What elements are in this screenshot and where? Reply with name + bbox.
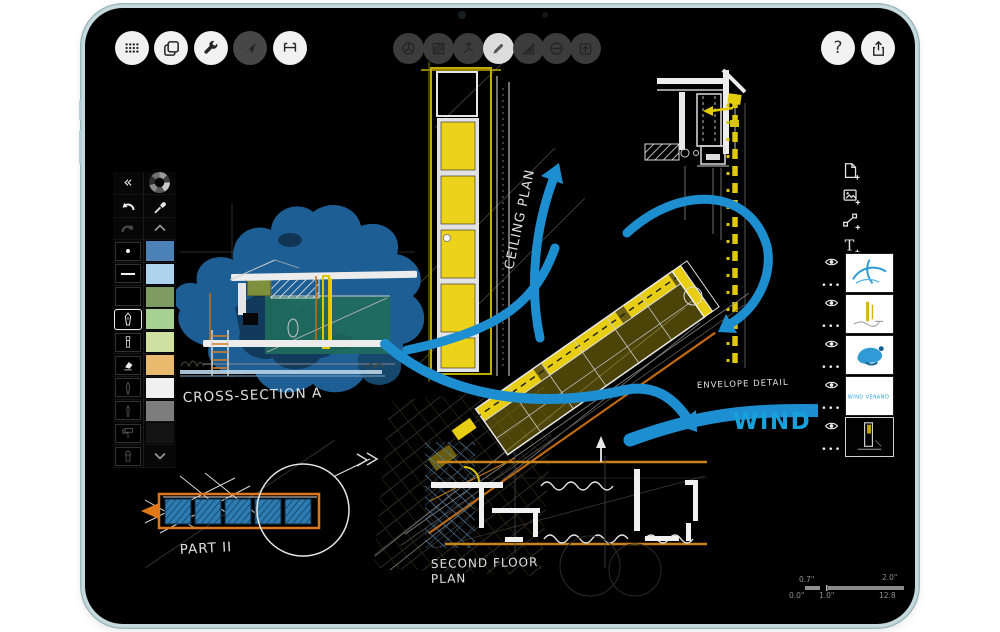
circle-minus-icon	[548, 40, 565, 57]
pencil-tool-icon	[119, 380, 137, 396]
layer-thumbnail-arrows[interactable]	[845, 253, 894, 293]
eyedropper-icon	[151, 197, 169, 215]
layer-thumbnail-yellow[interactable]	[845, 294, 894, 334]
part-two-drawing	[141, 453, 377, 556]
layer-options-icon[interactable]: •••	[821, 366, 841, 371]
redo-button[interactable]	[113, 218, 144, 241]
tool-slot-pencil[interactable]	[113, 377, 144, 400]
eye-icon[interactable]	[824, 421, 839, 431]
color-swatch-olive[interactable]	[144, 286, 175, 309]
svg-text:1.0": 1.0"	[819, 591, 834, 600]
help-button[interactable]: ?	[821, 31, 855, 65]
svg-text:0.0": 0.0"	[789, 591, 804, 600]
color-swatch-yellow-green[interactable]	[144, 331, 175, 354]
tool-slot-fineliner[interactable]	[113, 400, 144, 423]
tool-slot-pen-selected[interactable]	[113, 309, 144, 332]
power-button[interactable]	[79, 100, 82, 120]
sphere-tool-button[interactable]	[393, 33, 424, 64]
ipad-device: CROSS-SECTION A CEILING PLAN	[85, 8, 915, 624]
wrench-icon	[202, 39, 220, 57]
color-swatch-orange[interactable]	[144, 354, 175, 377]
tool-slot-stroke-line[interactable]	[113, 263, 144, 286]
add-nodes-icon	[841, 211, 861, 231]
slice-tool-button[interactable]	[541, 33, 572, 64]
swatch-scroll-up-button[interactable]	[144, 218, 175, 241]
eye-icon[interactable]	[824, 339, 839, 349]
eraser-tool-icon	[119, 357, 137, 373]
set-square-button[interactable]	[513, 33, 544, 64]
tool-slot-empty[interactable]	[113, 286, 144, 309]
layer-row-blue-massing: •••	[818, 334, 896, 375]
collapse-panel-button[interactable]: «	[113, 172, 144, 195]
color-wheel-button[interactable]	[144, 172, 175, 195]
add-image-icon	[841, 186, 861, 206]
undo-button[interactable]	[113, 195, 144, 218]
layer-row-wind-verano: ••• WIND VERANO	[818, 375, 896, 416]
layer-options-icon[interactable]: •••	[821, 284, 841, 289]
add-image-button[interactable]	[831, 183, 871, 208]
undo-icon	[120, 199, 136, 213]
add-page-icon	[841, 161, 861, 181]
share-button[interactable]	[861, 31, 895, 65]
stroke-dot-icon	[126, 249, 130, 253]
tool-slot-marker[interactable]	[113, 331, 144, 354]
layer-thumbnail-base-drawing[interactable]	[845, 417, 894, 457]
layers-panel: ••• •••	[818, 252, 896, 457]
pen-tool-icon	[119, 311, 137, 327]
export-selection-button[interactable]	[570, 33, 601, 64]
roller-tool-icon	[119, 425, 137, 441]
navigate-button[interactable]	[233, 31, 267, 65]
cursor-arrow-icon	[241, 39, 259, 57]
axis-compass-icon	[460, 40, 477, 57]
camera-sensor	[542, 12, 548, 18]
layer-thumbnail-blue[interactable]	[845, 335, 894, 375]
svg-text:0.7": 0.7"	[799, 575, 814, 584]
wind-verano-thumb-text: WIND VERANO	[848, 394, 889, 400]
product-stage: CROSS-SECTION A CEILING PLAN	[0, 0, 1000, 632]
tool-slot-airbrush[interactable]	[113, 445, 144, 468]
color-swatch-green[interactable]	[144, 309, 175, 332]
grid-menu-button[interactable]	[115, 31, 149, 65]
pages-icon	[162, 39, 181, 58]
airbrush-tool-icon	[119, 448, 137, 464]
svg-text:12.8: 12.8	[879, 591, 896, 600]
add-object-column: T	[831, 158, 871, 258]
chevron-up-icon	[153, 224, 167, 232]
second-floor-label-1: SECOND FLOOR	[431, 555, 539, 571]
share-icon	[869, 39, 888, 58]
chevron-down-icon	[153, 452, 167, 460]
box-arrow-up-icon	[577, 40, 594, 57]
add-nodes-button[interactable]	[831, 208, 871, 233]
grid-dots-icon	[123, 39, 141, 57]
layer-options-icon[interactable]: •••	[821, 325, 841, 330]
measure-icon	[281, 39, 299, 57]
sphere-3d-icon	[400, 40, 417, 57]
scale-legend: 0.7" 2.0" 0.0" 1.0" 12.8	[789, 573, 904, 600]
cross-section-label: CROSS-SECTION A	[183, 385, 323, 406]
eye-icon[interactable]	[824, 380, 839, 390]
hatch-fill-icon	[430, 40, 447, 57]
layer-row-yellow: •••	[818, 293, 896, 334]
settings-button[interactable]	[194, 31, 228, 65]
app-screen: CROSS-SECTION A CEILING PLAN	[85, 8, 915, 624]
tool-slot-stroke-dot[interactable]	[113, 240, 144, 263]
svg-text:2.0": 2.0"	[882, 573, 897, 582]
fill-tool-button[interactable]	[423, 33, 454, 64]
eye-icon[interactable]	[824, 257, 839, 267]
color-swatch-blue[interactable]	[144, 240, 175, 263]
axis-tool-button[interactable]	[453, 33, 484, 64]
drawing-canvas[interactable]: CROSS-SECTION A CEILING PLAN	[85, 8, 915, 624]
color-wheel-icon	[149, 172, 170, 193]
layer-row-arrows: •••	[818, 252, 896, 293]
stroke-line-icon	[121, 273, 135, 275]
pages-button[interactable]	[154, 31, 188, 65]
volume-button[interactable]	[79, 130, 82, 164]
color-swatch-black[interactable]	[144, 422, 175, 445]
second-floor-label-2: PLAN	[431, 571, 467, 586]
collapse-chevrons-icon: «	[123, 175, 132, 190]
fineliner-tool-icon	[119, 403, 137, 419]
tools-panel: «	[113, 172, 176, 468]
front-camera	[458, 11, 466, 19]
pen-tool-button[interactable]	[483, 33, 514, 64]
redo-icon	[120, 221, 136, 235]
color-swatch-white[interactable]	[144, 377, 175, 400]
measure-button[interactable]	[273, 31, 307, 65]
pen-icon	[490, 40, 507, 57]
set-square-icon	[520, 40, 537, 57]
layer-row-base-drawing-selected: •••	[818, 416, 896, 457]
layer-options-icon[interactable]: •••	[821, 448, 841, 453]
layer-thumbnail-wind-verano[interactable]: WIND VERANO	[845, 376, 894, 416]
tool-slot-eraser[interactable]	[113, 354, 144, 377]
color-swatch-gray[interactable]	[144, 400, 175, 423]
color-swatch-light-blue[interactable]	[144, 263, 175, 286]
layer-options-icon[interactable]: •••	[821, 407, 841, 412]
add-page-button[interactable]	[831, 158, 871, 183]
question-icon: ?	[833, 38, 842, 58]
part-two-label: PART II	[179, 539, 232, 558]
swatch-scroll-down-button[interactable]	[144, 445, 175, 468]
eye-icon[interactable]	[824, 298, 839, 308]
tool-slot-roller[interactable]	[113, 422, 144, 445]
marker-tool-icon	[119, 334, 137, 350]
eyedropper-button[interactable]	[144, 195, 175, 218]
envelope-detail-label: ENVELOPE DETAIL	[697, 378, 789, 391]
